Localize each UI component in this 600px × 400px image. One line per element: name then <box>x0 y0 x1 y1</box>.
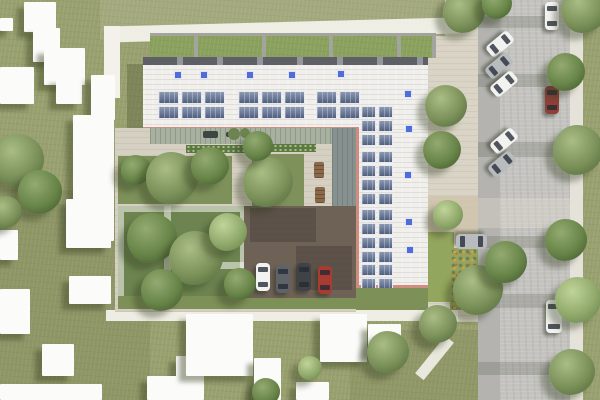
roof-skylight <box>404 90 412 98</box>
solar-panel-array <box>361 264 393 290</box>
roof-skylight <box>200 71 208 79</box>
neighbor-building <box>0 67 34 104</box>
solar-panel-array <box>238 91 305 119</box>
neighbor-building <box>320 314 367 362</box>
solar-panel <box>378 151 393 163</box>
tree-shadow <box>250 208 316 242</box>
solar-panel <box>261 106 282 119</box>
deck-furniture <box>203 131 218 138</box>
solar-panel <box>316 106 337 119</box>
solar-panel <box>361 134 376 146</box>
parked-car <box>456 234 487 249</box>
solar-panel <box>378 251 393 263</box>
solar-panel <box>361 237 376 249</box>
solar-panel <box>378 106 393 118</box>
neighbor-building <box>296 382 329 400</box>
tree <box>555 277 600 323</box>
parked-car <box>318 266 332 294</box>
neighbor-building <box>56 78 82 104</box>
neighbor-building <box>0 384 102 400</box>
street-tree-shadow <box>478 16 544 28</box>
solar-panel <box>378 134 393 146</box>
car-rear-window <box>493 83 503 94</box>
neighbor-building <box>0 230 18 260</box>
roof-skylight <box>337 70 345 78</box>
solar-panel <box>158 91 179 104</box>
car-windshield <box>320 270 330 275</box>
solar-panel <box>361 264 376 276</box>
solar-panel <box>261 91 282 104</box>
tree <box>252 378 280 400</box>
solar-panel <box>361 209 376 221</box>
roof-skylight <box>405 125 413 133</box>
green-roof-divider <box>397 36 401 58</box>
car-rear-window <box>258 282 268 287</box>
solar-panel <box>158 106 179 119</box>
solar-panel <box>378 193 393 205</box>
car-rear-window <box>299 282 309 287</box>
solar-panel <box>181 106 202 119</box>
solar-panel <box>339 106 360 119</box>
roof-skylight <box>246 71 254 79</box>
solar-panel <box>378 237 393 249</box>
car-windshield <box>505 131 515 142</box>
neighbor-building <box>66 199 111 248</box>
moving-car <box>545 86 559 114</box>
solar-panel <box>378 264 393 276</box>
car-windshield <box>299 267 309 272</box>
solar-panel-array <box>316 91 360 119</box>
solar-panel <box>316 91 337 104</box>
parked-car <box>545 2 559 30</box>
neighbor-building <box>42 344 74 376</box>
car-windshield <box>547 6 557 11</box>
car-windshield <box>478 236 483 247</box>
solar-panel <box>361 120 376 132</box>
parked-car <box>297 263 311 291</box>
green-roof-strip <box>150 36 436 58</box>
car-windshield <box>505 74 515 85</box>
car-rear-window <box>488 65 498 76</box>
car-rear-window <box>491 163 501 174</box>
solar-panel <box>378 209 393 221</box>
lawn-strip <box>356 288 428 310</box>
roof-parapet <box>356 127 359 288</box>
car-windshield <box>503 154 513 165</box>
roof-skylight <box>404 171 412 179</box>
solar-panel <box>361 193 376 205</box>
bench <box>315 187 325 203</box>
solar-panel <box>361 251 376 263</box>
solar-panel <box>339 91 360 104</box>
tree <box>553 125 600 175</box>
neighbor-building <box>186 314 253 376</box>
solar-panel <box>361 165 376 177</box>
car-windshield <box>278 269 288 274</box>
solar-panel <box>361 179 376 191</box>
solar-panel-array <box>158 91 225 119</box>
green-roof-divider <box>329 36 333 58</box>
car-rear-window <box>489 43 499 54</box>
car-rear-window <box>320 285 330 290</box>
solar-panel <box>238 106 259 119</box>
roof-skylight <box>174 71 182 79</box>
neighbor-building <box>0 18 13 31</box>
car-rear-window <box>493 140 503 151</box>
neighbor-building <box>69 276 111 304</box>
building-shadow <box>127 64 143 130</box>
solar-panel <box>378 165 393 177</box>
car-rear-window <box>547 21 557 26</box>
solar-panel <box>361 106 376 118</box>
parked-car <box>276 265 290 293</box>
solar-panel <box>361 223 376 235</box>
solar-panel <box>204 106 225 119</box>
site-plan-canvas <box>0 0 600 400</box>
green-roof-divider <box>194 36 198 58</box>
neighbor-building <box>147 376 177 400</box>
car-windshield <box>501 34 511 45</box>
solar-panel <box>284 91 305 104</box>
car-rear-window <box>548 324 560 329</box>
solar-panel <box>378 179 393 191</box>
roof-skylight <box>405 218 413 226</box>
solar-panel <box>361 151 376 163</box>
car-rear-window <box>547 105 557 110</box>
green-roof-divider <box>262 36 266 58</box>
solar-panel-array <box>361 106 393 146</box>
solar-panel <box>181 91 202 104</box>
roof-skylight <box>406 246 414 254</box>
neighbor-building <box>0 289 30 334</box>
neighbor-building <box>91 75 115 120</box>
roof-skylight <box>288 71 296 79</box>
solar-panel <box>204 91 225 104</box>
car-rear-window <box>460 236 465 247</box>
deck-plant <box>228 128 240 140</box>
solar-panel-array <box>361 209 393 263</box>
solar-panel <box>378 120 393 132</box>
solar-panel <box>378 223 393 235</box>
roof-edge-strip <box>143 57 428 65</box>
street-tree-shadow <box>478 362 550 375</box>
car-windshield <box>258 267 268 272</box>
bench <box>314 162 324 178</box>
solar-panel-array <box>361 151 393 205</box>
solar-panel <box>284 106 305 119</box>
car-rear-window <box>278 284 288 289</box>
solar-panel <box>238 91 259 104</box>
car-windshield <box>547 90 557 95</box>
car-windshield <box>500 56 510 67</box>
parked-car <box>256 263 270 291</box>
green-roof-divider <box>432 36 436 58</box>
